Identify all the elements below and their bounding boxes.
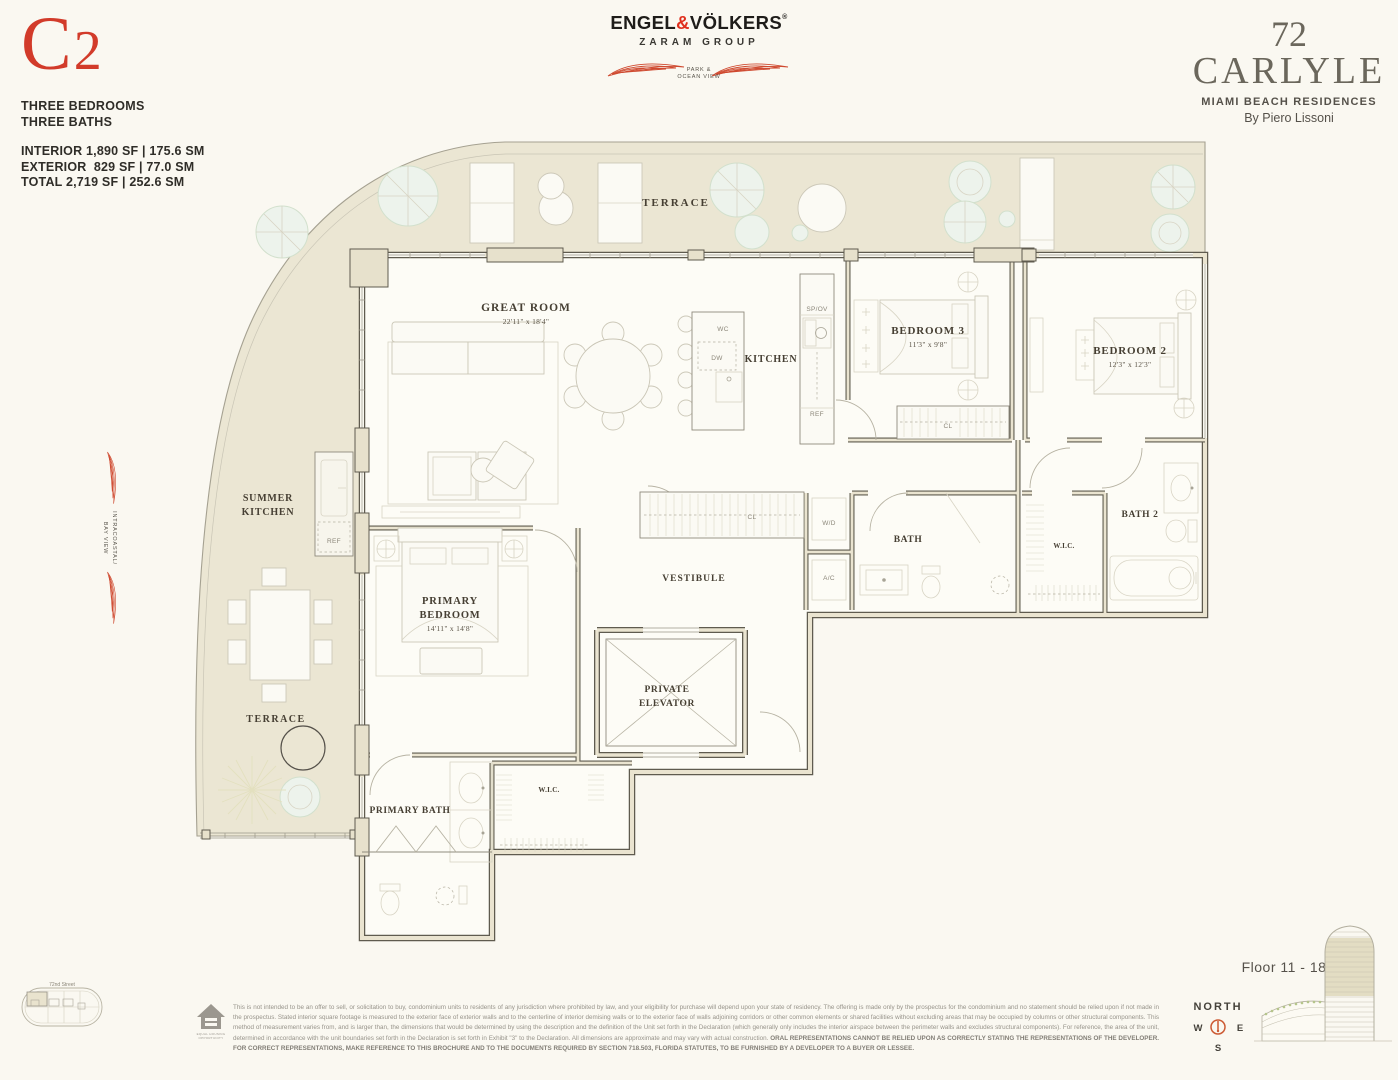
equal-housing-icon: EQUAL HOUSING OPPORTUNITY	[197, 1004, 226, 1040]
project-name: CARLYLE	[1180, 52, 1398, 92]
unit-areas: INTERIOR 1,890 SF | 175.6 SM EXTERIOR 82…	[21, 144, 204, 191]
ref-kitchen-label: REF	[810, 411, 824, 418]
cl-bed3-label: CL	[944, 423, 953, 430]
bedrooms-line: THREE BEDROOMS	[21, 98, 204, 114]
svg-text:W: W	[1194, 1023, 1203, 1034]
terrace-top-label: TERRACE	[642, 197, 710, 209]
kitchen-label: KITCHEN	[745, 354, 798, 365]
wave-icon	[107, 452, 115, 504]
bedroom2-dims: 12'3" x 12'3"	[1109, 360, 1152, 369]
wave-icon	[712, 64, 788, 76]
private-elevator-label: PRIVATE	[644, 685, 689, 695]
project-number: 72	[1180, 16, 1398, 52]
unit-header: C2 THREE BEDROOMS THREE BATHS INTERIOR 1…	[21, 6, 204, 191]
summer-kitchen-label: SUMMER	[243, 493, 293, 504]
primary-bath-label: PRIMARY BATH	[369, 806, 450, 816]
svg-text:E: E	[1237, 1023, 1243, 1034]
keyplan: 72nd Street	[22, 982, 102, 1026]
primary-bedroom-label: PRIMARY	[422, 596, 478, 607]
floorplan-canvas: TERRACE TERRACE	[0, 0, 1398, 1080]
svg-text:BAY VIEW: BAY VIEW	[102, 522, 108, 554]
wic-bottom-label: W.I.C.	[538, 786, 559, 794]
building-sketch: Floor 11 - 18	[1242, 926, 1392, 1041]
great-room-label: GREAT ROOM	[481, 302, 571, 314]
brochure-page: TERRACE TERRACE	[0, 0, 1398, 1080]
bedroom2-label: BEDROOM 2	[1093, 345, 1167, 357]
compass-north-label: NORTH	[1193, 1001, 1242, 1013]
unit-code: C2	[21, 6, 204, 82]
bedroom3-dims: 11'3" x 9'8"	[909, 340, 947, 349]
broker-name: ENGEL&VÖLKERS®	[569, 12, 829, 34]
view-left-label: INTRACOASTAL/	[111, 511, 117, 565]
compass: NORTH W E S	[1193, 1001, 1243, 1054]
svg-text:ELEVATOR: ELEVATOR	[639, 699, 695, 709]
wic-right-label: W.I.C.	[1053, 542, 1074, 550]
corner-pier	[350, 249, 388, 287]
ref-summer-label: REF	[327, 538, 341, 545]
wave-icon	[107, 572, 115, 624]
cl-entry-label: CL	[748, 514, 757, 521]
exterior-area: EXTERIOR 829 SF | 77.0 SM	[21, 160, 204, 176]
dw-label: DW	[711, 355, 723, 362]
unit: GREAT ROOM 22'11" x 18'4" KITCHEN BEDROO…	[242, 248, 1205, 938]
bath-label: BATH	[894, 535, 923, 545]
dining-table	[576, 339, 650, 413]
terrace-bottom-label: TERRACE	[246, 714, 305, 725]
spov-label: SP/OV	[806, 306, 828, 313]
great-room-dims: 22'11" x 18'4"	[503, 317, 550, 326]
bedroom3-label: BEDROOM 3	[891, 325, 965, 337]
broker-logo: ENGEL&VÖLKERS® ZARAM GROUP	[569, 12, 829, 48]
project-tagline: MIAMI BEACH RESIDENCES	[1180, 96, 1398, 108]
view-top-label: PARK &	[687, 67, 712, 73]
project-byline: By Piero Lissoni	[1180, 111, 1398, 125]
broker-group: ZARAM GROUP	[569, 37, 829, 48]
door-slab	[487, 248, 563, 262]
svg-text:BEDROOM: BEDROOM	[419, 610, 480, 621]
project-logo: 72 CARLYLE MIAMI BEACH RESIDENCES By Pie…	[1180, 16, 1398, 125]
wd-label: W/D	[822, 520, 836, 527]
wave-icon	[608, 64, 684, 76]
primary-bedroom-dims: 14'11" x 14'8"	[427, 624, 474, 633]
svg-text:OPPORTUNITY: OPPORTUNITY	[199, 1036, 224, 1040]
svg-text:OCEAN VIEW: OCEAN VIEW	[677, 74, 720, 80]
interior-area: INTERIOR 1,890 SF | 175.6 SM	[21, 144, 204, 160]
bath2-label: BATH 2	[1122, 510, 1159, 520]
baths-line: THREE BATHS	[21, 114, 204, 130]
unit-specs: THREE BEDROOMS THREE BATHS	[21, 98, 204, 130]
svg-text:S: S	[1215, 1043, 1221, 1054]
floor-range-label: Floor 11 - 18	[1242, 959, 1327, 975]
vestibule-label: VESTIBULE	[662, 574, 725, 584]
svg-text:KITCHEN: KITCHEN	[242, 507, 295, 518]
keyplan-unit-highlight	[27, 992, 47, 1006]
total-area: TOTAL 2,719 SF | 252.6 SM	[21, 175, 204, 191]
palm-icon	[218, 756, 286, 824]
wc-label: WC	[717, 326, 728, 333]
ac-label: A/C	[823, 575, 835, 582]
legal-disclaimer: This is not intended to be an offer to s…	[233, 1003, 1159, 1054]
keyplan-street-label: 72nd Street	[49, 982, 75, 988]
